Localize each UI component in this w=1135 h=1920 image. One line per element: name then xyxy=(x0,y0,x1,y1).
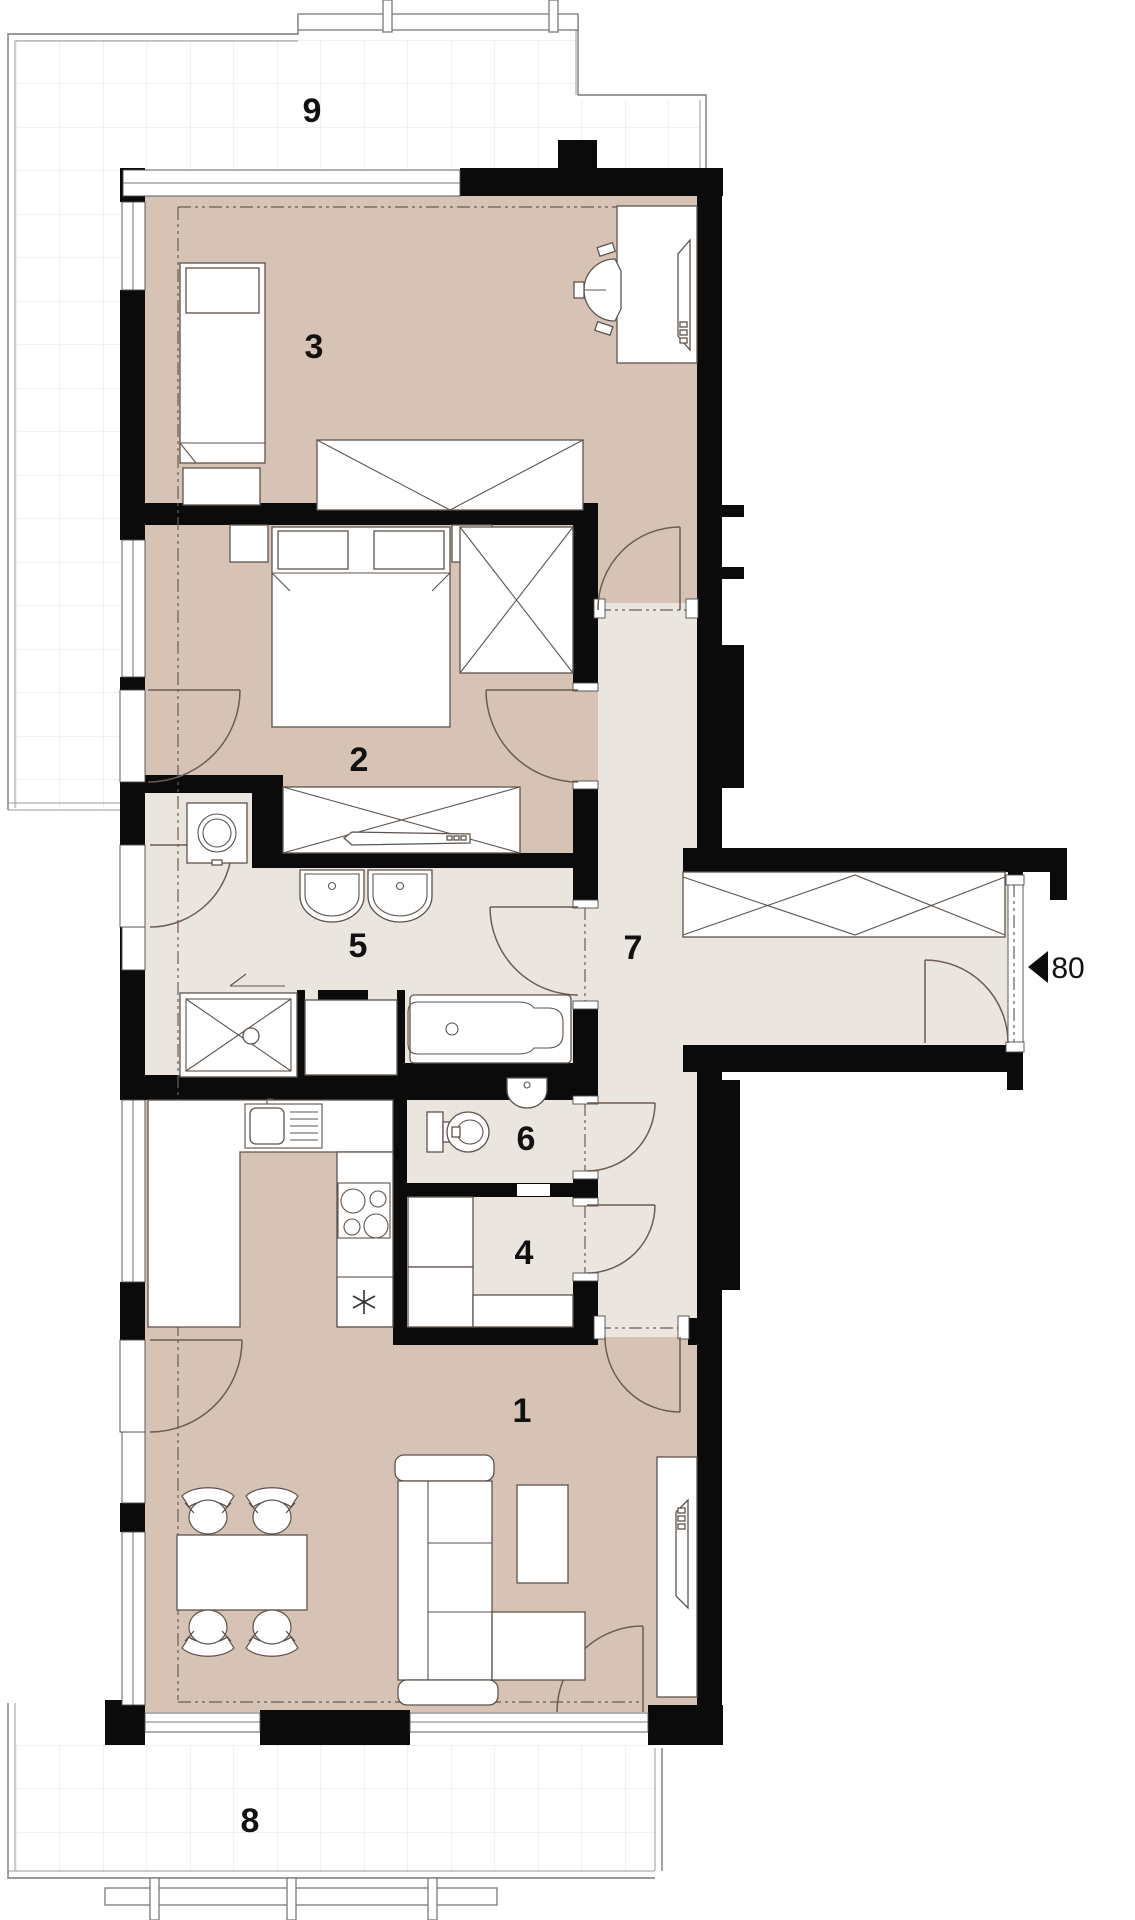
window-kitchen xyxy=(122,1100,145,1282)
bath-cabinet xyxy=(305,1000,397,1075)
terrace-top-railing xyxy=(298,14,578,30)
label-bathroom: 5 xyxy=(349,927,368,965)
floor-plan: 9 3 2 5 7 6 4 1 8 80 xyxy=(0,0,1135,1920)
label-storage: 4 xyxy=(515,1234,534,1272)
storage-shelf xyxy=(473,1295,573,1327)
balcony-door-opening-living xyxy=(120,1340,145,1432)
tv-icon xyxy=(676,1500,688,1608)
terrace-door-opening-bath xyxy=(120,845,145,927)
terrace-bottom-grid xyxy=(16,1745,655,1871)
bathtub-icon xyxy=(408,995,571,1063)
tv-icon xyxy=(344,832,470,845)
floor-hall xyxy=(598,603,697,1337)
sink-icon xyxy=(368,870,432,922)
window-living-left-a xyxy=(122,1432,145,1503)
wardrobe xyxy=(317,440,583,510)
bed-pillow xyxy=(186,268,259,313)
label-hall: 7 xyxy=(624,929,643,967)
built-in-wardrobe xyxy=(683,872,1005,937)
window-bed3 xyxy=(122,202,145,290)
storage-shelf xyxy=(408,1197,473,1267)
entry-door-width-label: 80 xyxy=(1051,952,1084,985)
monitor-icon xyxy=(678,240,690,350)
railing-post xyxy=(383,0,392,32)
label-wc: 6 xyxy=(517,1120,536,1158)
storage-shelf xyxy=(408,1267,473,1327)
nightstand xyxy=(230,525,268,562)
window-bath xyxy=(122,927,145,970)
railing-post xyxy=(287,1878,296,1920)
railing-post xyxy=(150,1878,159,1920)
label-terrace-top: 9 xyxy=(303,92,322,130)
label-bedroom-2: 2 xyxy=(350,741,369,779)
coffee-table xyxy=(517,1485,568,1583)
washing-machine-icon xyxy=(187,803,247,865)
dining-table xyxy=(177,1535,307,1610)
floor-door-gap xyxy=(573,690,598,783)
toilet-icon xyxy=(427,1112,489,1152)
bed-pillow xyxy=(278,531,348,569)
balcony-door-opening-bed2 xyxy=(120,690,145,782)
window-living-bottom-b xyxy=(410,1713,648,1732)
sofa-chaise xyxy=(492,1612,585,1680)
entrance-arrow-icon xyxy=(1028,951,1048,983)
terrace-bottom-railing xyxy=(105,1888,497,1905)
entry-hall xyxy=(683,872,1005,937)
entry-door-opening xyxy=(1008,884,1023,1045)
floors xyxy=(145,196,1008,1712)
shower-icon xyxy=(180,993,297,1077)
window-bed2 xyxy=(122,540,145,677)
railing-post xyxy=(549,0,558,32)
label-terrace-bottom: 8 xyxy=(241,1802,260,1840)
entry-marker: 80 xyxy=(1028,951,1085,985)
window-living-left-b xyxy=(122,1532,145,1705)
window-living-bottom-a xyxy=(145,1713,260,1732)
label-living: 1 xyxy=(513,1392,532,1430)
bed-pillow xyxy=(374,531,444,569)
sink-icon xyxy=(300,870,364,922)
corner-sink-icon xyxy=(507,1078,547,1108)
railing-post xyxy=(428,1878,437,1920)
label-bedroom-3: 3 xyxy=(305,328,324,366)
bed-bench xyxy=(183,468,260,505)
